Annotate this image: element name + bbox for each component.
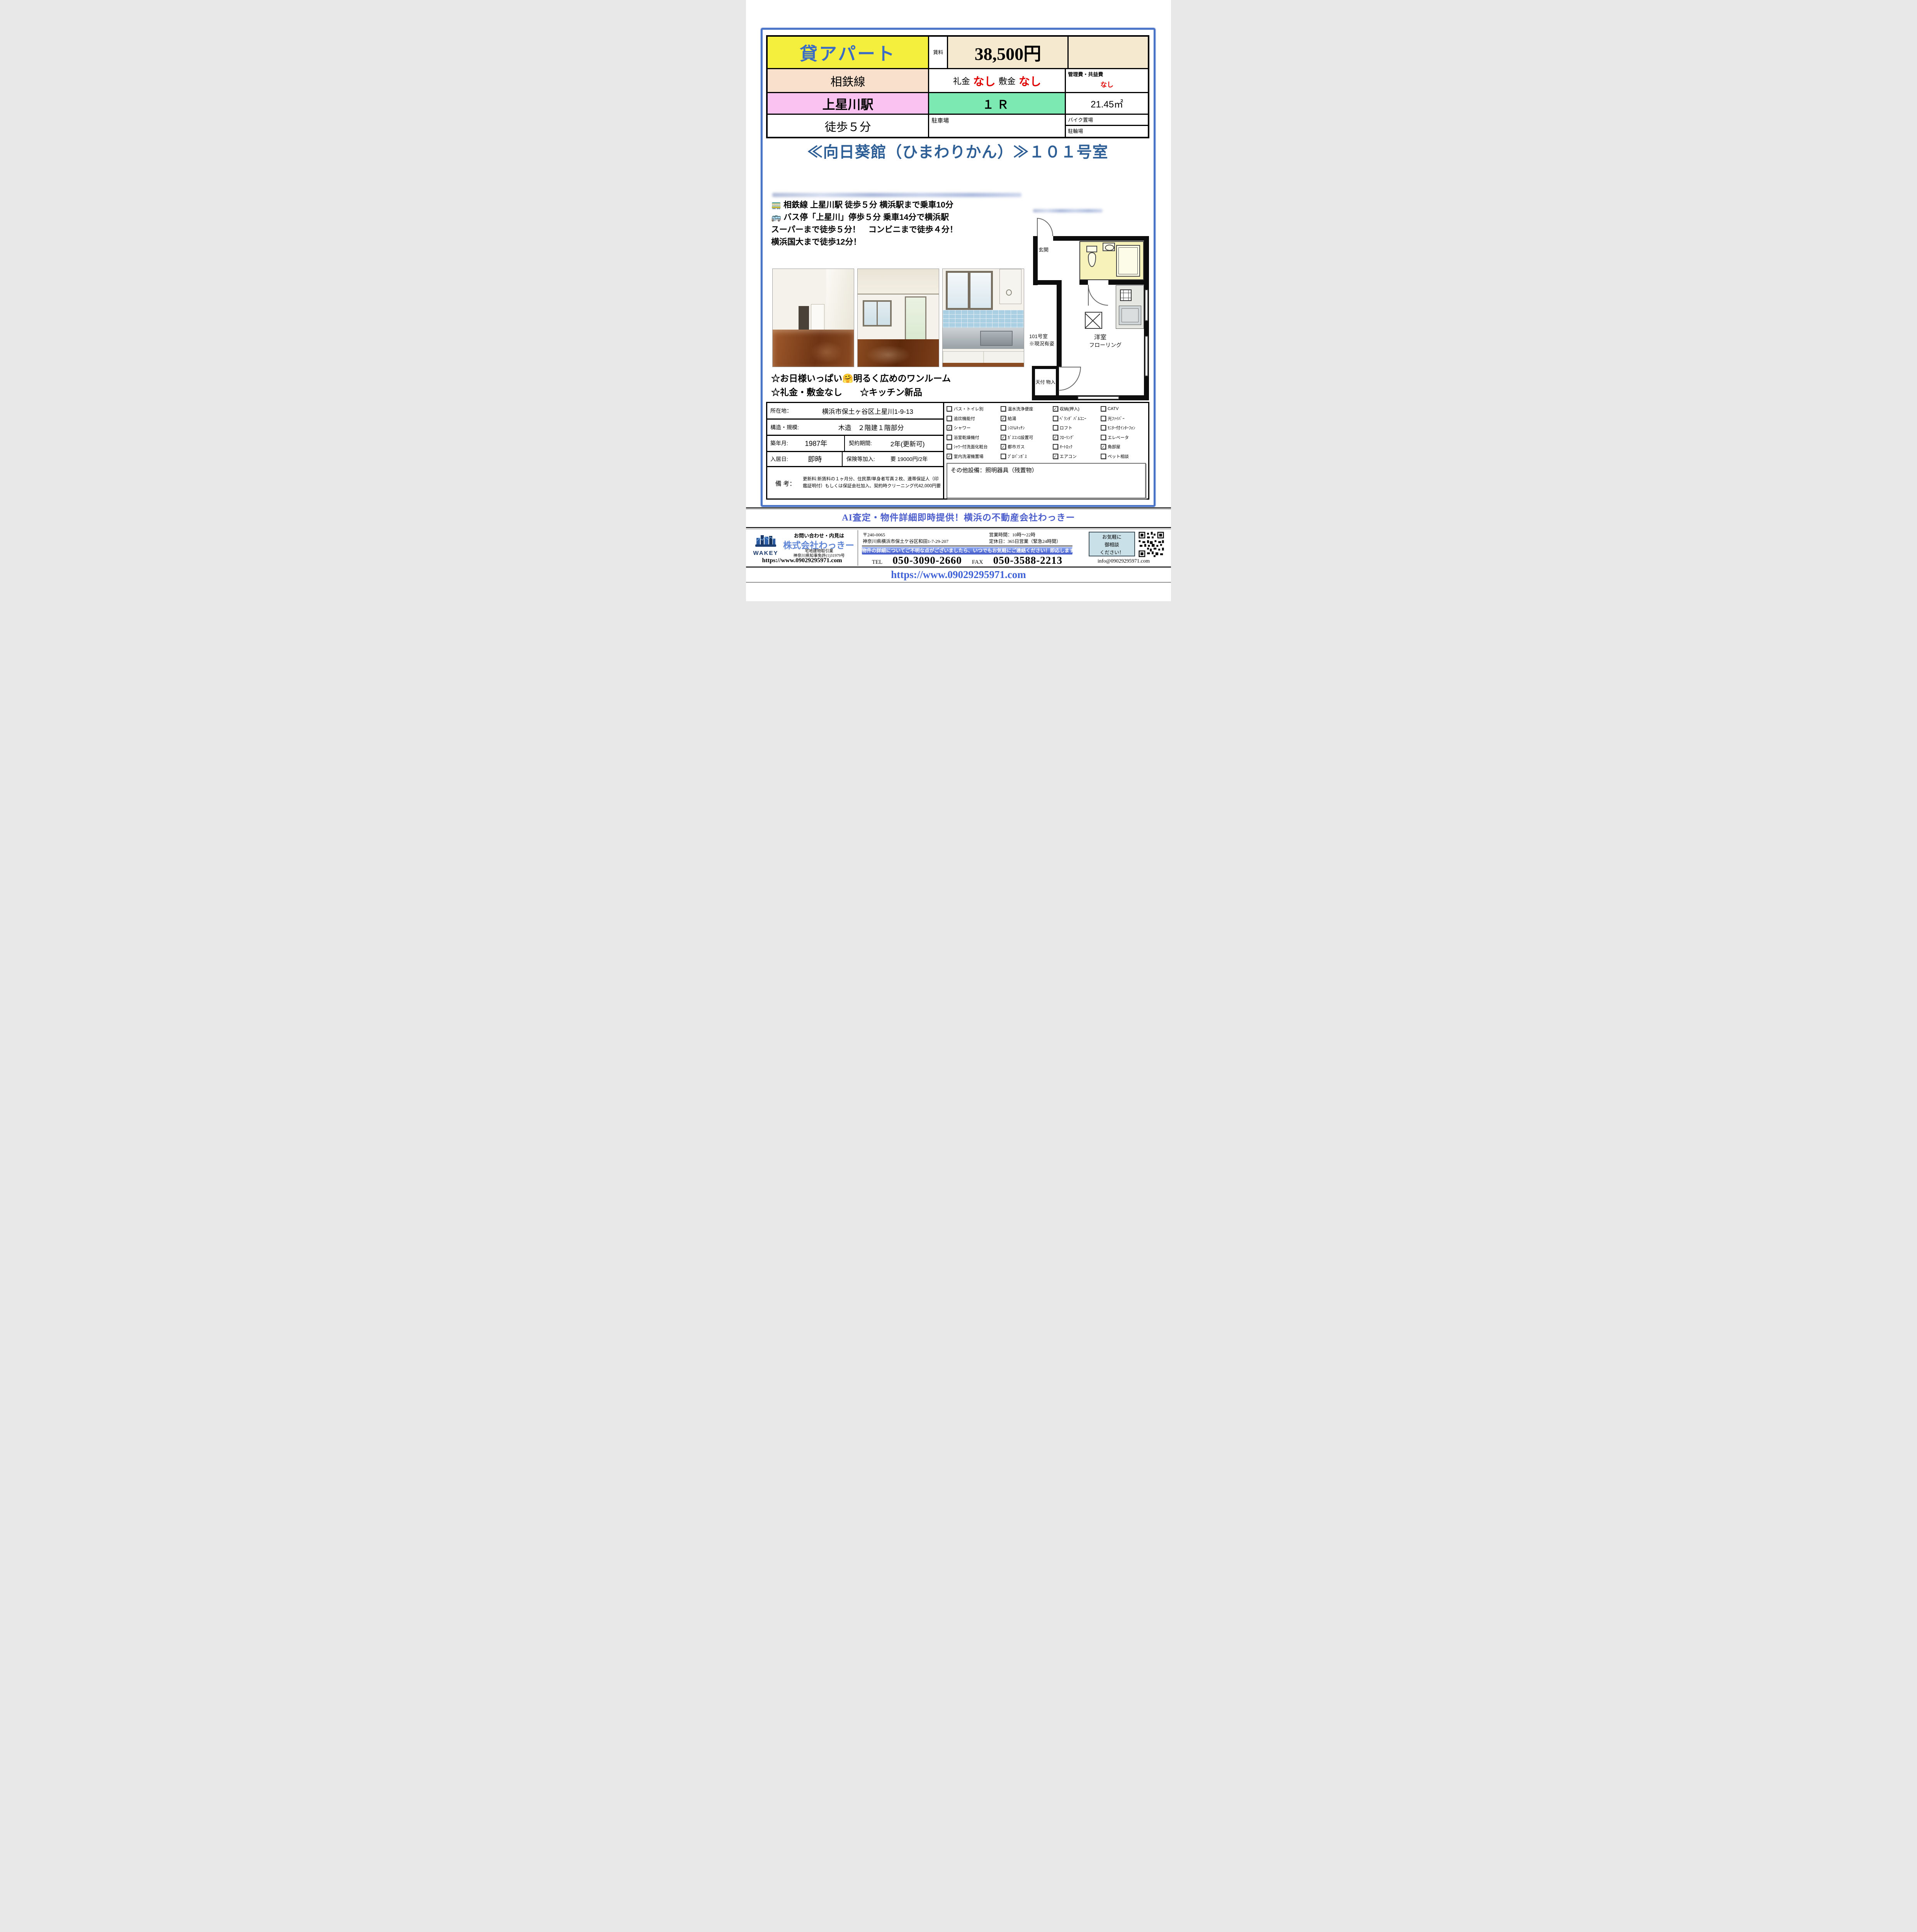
amenity-label: 室内洗濯機置場 <box>953 453 983 459</box>
checkbox-icon <box>1053 444 1058 449</box>
floor-plan: 玄関 洋室 フローリング 101号室 ※現況有姿 天付 <box>1029 194 1154 404</box>
movein-value: 即時 <box>788 454 842 464</box>
amenity-item: バス・トイレ別 <box>947 404 1001 414</box>
tel-number[interactable]: 050-3090-2660 <box>892 554 962 566</box>
details-table: 所在地： 横浜市保土ヶ谷区上星川1-9-13 構造・規模: 木造 ２階建１階部分… <box>766 402 1149 500</box>
checkbox-checked-icon: ✓ <box>947 454 952 459</box>
contract-label: 契約期間: <box>844 436 872 451</box>
bathtub-icon <box>1116 245 1140 277</box>
footer-company-block: WAKEY お問い合わせ・内見は 株式会社わっきー 宅地建物取引業 神奈川県知事… <box>746 530 858 566</box>
divider-line-2 <box>746 527 1171 529</box>
amenity-label: エアコン <box>1060 453 1077 459</box>
movein-row: 入居日: 即時 保険等加入: 要 19000円/2年 <box>767 452 943 468</box>
amenity-label: 給湯 <box>1008 415 1016 422</box>
details-right: バス・トイレ別温水洗浄便座✓収納(押入)CATV追炊機能付✓給湯ﾍﾞﾗﾝﾀﾞ ﾊ… <box>944 403 1148 498</box>
sink-icon <box>1103 243 1115 251</box>
amenity-item: ペット相談 <box>1101 452 1147 461</box>
divider-line-3 <box>746 566 1171 568</box>
amenity-label: バス・トイレ別 <box>953 406 983 412</box>
movein-label: 入居日: <box>767 455 788 463</box>
amenity-label: ﾌﾟﾛﾊﾟﾝｶﾞｽ <box>1008 453 1027 459</box>
photo2-balcony-door <box>905 296 927 345</box>
amenity-label: 浴室乾燥機付 <box>953 434 979 440</box>
checkbox-checked-icon: ✓ <box>1001 444 1006 449</box>
photo3-water-heater <box>999 269 1021 304</box>
management-fee-label: 管理費・共益費 <box>1068 70 1103 78</box>
business-hours: 営業時間：10時～22時 定休日：365日営業（緊急24時間） <box>989 532 1061 545</box>
amenity-label: ｼｽﾃﾑｷｯﾁﾝ <box>1008 425 1025 431</box>
amenity-label: ﾌﾛｰﾘﾝｸﾞ <box>1060 434 1075 440</box>
amenity-label: ﾍﾞﾗﾝﾀﾞ ﾊﾞﾙｺﾆｰ <box>1060 415 1086 422</box>
checkbox-checked-icon: ✓ <box>1001 416 1006 421</box>
checkbox-icon <box>947 435 952 440</box>
closet: 天付 物入 <box>1032 366 1059 398</box>
management-fee-cell: 管理費・共益費 なし <box>1066 69 1148 92</box>
checkbox-checked-icon: ✓ <box>947 425 952 430</box>
fax-number: 050-3588-2213 <box>993 554 1062 566</box>
location-value: 横浜市保土ヶ谷区上星川1-9-13 <box>792 406 943 416</box>
amenity-item: 光ﾌｧｲﾊﾞｰ <box>1101 414 1147 423</box>
amenity-item: 浴室乾燥機付 <box>947 433 1001 442</box>
bike-cells: バイク置場 駐輪場 <box>1066 115 1148 137</box>
footer-rule <box>862 546 1072 546</box>
amenity-item: ✓収納(押入) <box>1053 404 1101 414</box>
amenity-label: エレベータ <box>1108 434 1129 440</box>
phone-numbers: TEL 050-3090-2660 FAX 050-3588-2213 <box>858 554 1076 566</box>
blank-cell <box>1069 37 1148 68</box>
logo-wordmark: WAKEY <box>751 550 780 556</box>
location-label: 所在地： <box>767 407 792 415</box>
room-door-arc <box>1059 367 1081 391</box>
holiday-line: 定休日：365日営業（緊急24時間） <box>989 538 1061 545</box>
rent-label-cell: 賃料 <box>929 37 948 68</box>
bike-storage-cell: バイク置場 <box>1066 115 1148 126</box>
bicycle-storage-cell: 駐輪場 <box>1066 126 1148 137</box>
header-table: 貸アパート 賃料 38,500円 相鉄線 礼金 なし 敷金 なし 管理費・共益費… <box>766 35 1149 138</box>
access-line: 🚃 相鉄線 上星川駅 徒歩５分 横浜駅まで乗車10分 <box>771 199 1026 211</box>
access-lines: 🚃 相鉄線 上星川駅 徒歩５分 横浜駅まで乗車10分🚌 バス停「上星川」停歩５分… <box>771 199 1026 248</box>
amenity-label: 角部屋 <box>1108 444 1120 450</box>
photo2-window <box>863 300 892 327</box>
photo1-floor-shine <box>810 341 843 363</box>
insurance-label: 保険等加入: <box>842 452 875 466</box>
fax-label: FAX <box>972 559 983 566</box>
fees-cell: 礼金 なし 敷金 なし <box>929 69 1066 92</box>
photo1-wall <box>826 269 854 333</box>
amenity-item: ✓シャワー <box>947 423 1001 433</box>
wall-entrance-bottom <box>1033 280 1062 285</box>
redacted-text-bar <box>772 193 1021 197</box>
wall-bath-bottom-right <box>1108 280 1144 285</box>
amenity-item: ﾍﾞﾗﾝﾀﾞ ﾊﾞﾙｺﾆｰ <box>1053 414 1101 423</box>
checkbox-icon <box>1001 454 1006 459</box>
checkbox-icon <box>1101 435 1106 440</box>
amenity-label: 光ﾌｧｲﾊﾞｰ <box>1108 415 1125 422</box>
amenity-item: ✓ﾌﾛｰﾘﾝｸﾞ <box>1053 433 1101 442</box>
amenity-item: 追炊機能付 <box>947 414 1001 423</box>
bath-door-arc <box>1088 285 1108 306</box>
photo1-closet-door <box>811 304 825 333</box>
email-address[interactable]: info@09029295971.com <box>1076 558 1171 564</box>
amenities-grid: バス・トイレ別温水洗浄便座✓収納(押入)CATV追炊機能付✓給湯ﾍﾞﾗﾝﾀﾞ ﾊ… <box>947 404 1147 461</box>
checkbox-icon <box>947 416 952 421</box>
rail-line-cell: 相鉄線 <box>768 69 929 92</box>
structure-row: 構造・規模: 木造 ２階建１階部分 <box>767 420 943 436</box>
kitchen-sink-icon <box>1119 306 1141 325</box>
reikin-label: 礼金 <box>953 75 970 87</box>
amenity-item: ✓ｶﾞｽｺﾝﾛ設置可 <box>1001 433 1053 442</box>
ai-banner-text: AI査定・物件詳細即時提供！横浜の不動産会社わっきー <box>746 510 1171 523</box>
bathroom-unit <box>1079 241 1144 280</box>
hours-line: 営業時間：10時～22時 <box>989 532 1061 538</box>
other-equipment-box: その他設備：照明器具（残置物） <box>947 463 1146 498</box>
amenity-label: 温水洗浄便座 <box>1008 406 1033 412</box>
insurance-value: 要 19000円/2年 <box>875 455 943 463</box>
photo3-sink-counter <box>943 328 1024 349</box>
footer-contact-block: 〒240-0065 神奈川県横浜市保土ケ谷区和田1-7-29-207 営業時間：… <box>858 530 1076 566</box>
management-fee-value: なし <box>1100 79 1113 89</box>
amenity-item: ✓都市ガス <box>1001 442 1053 452</box>
flooring-label: フローリング <box>1089 341 1122 349</box>
footer: WAKEY お問い合わせ・内見は 株式会社わっきー 宅地建物取引業 神奈川県知事… <box>746 530 1171 566</box>
amenity-label: 都市ガス <box>1008 444 1025 450</box>
amenity-label: CATV <box>1108 406 1119 411</box>
access-line: 🚌 バス停「上星川」停歩５分 乗車14分で横浜駅 <box>771 211 1026 224</box>
amenity-label: ｼｬﾜｰ付洗面化粧台 <box>953 444 987 450</box>
wall-top <box>1053 236 1149 241</box>
built-row: 築年月: 1987年 契約期間: 2年(更新可) <box>767 436 943 452</box>
unit-caption: 101号室 ※現況有姿 <box>1029 333 1054 347</box>
photo2-floor-reflection <box>866 345 911 365</box>
amenity-label: 追炊機能付 <box>953 415 975 422</box>
entrance-label: 玄関 <box>1038 246 1049 253</box>
property-type-cell: 貸アパート <box>768 37 929 68</box>
amenity-item: ✓角部屋 <box>1101 442 1147 452</box>
amenity-item: エレベータ <box>1101 433 1147 442</box>
blue-frame: 貸アパート 賃料 38,500円 相鉄線 礼金 なし 敷金 なし 管理費・共益費… <box>761 28 1156 507</box>
details-left: 所在地： 横浜市保土ヶ谷区上星川1-9-13 構造・規模: 木造 ２階建１階部分… <box>767 403 944 498</box>
amenity-label: シャワー <box>953 425 970 431</box>
logo-buildings-icon <box>754 532 777 548</box>
tel-label: TEL <box>872 559 883 566</box>
checkbox-icon <box>1101 416 1106 421</box>
window-kitchen-icon <box>1145 289 1148 321</box>
checkbox-icon <box>1053 425 1058 430</box>
amenity-label: ロフト <box>1060 425 1072 431</box>
qr-code <box>1138 531 1165 558</box>
remarks-value: 更新料:新賃料の１ヶ月分、住民票/単身者写真２枚、連帯保証人（印鑑証明付）もしく… <box>800 476 943 490</box>
station-cell: 上星川駅 <box>768 93 929 114</box>
company-logo: WAKEY <box>751 532 780 556</box>
amenity-label: ｵｰﾄﾛｯｸ <box>1060 444 1072 450</box>
checkbox-icon <box>947 444 952 449</box>
amenity-item: ｼｬﾜｰ付洗面化粧台 <box>947 442 1001 452</box>
structure-label: 構造・規模: <box>767 423 799 431</box>
checkbox-icon <box>1101 406 1106 412</box>
checkbox-icon <box>1001 406 1006 412</box>
built-value: 1987年 <box>788 438 844 448</box>
amenity-item: ｵｰﾄﾛｯｸ <box>1053 442 1101 452</box>
company-website-link[interactable]: https://www.09029295971.com <box>746 557 858 564</box>
amenity-item: 温水洗浄便座 <box>1001 404 1053 414</box>
parking-cell: 駐車場 <box>929 115 1066 137</box>
stove-icon <box>1120 289 1132 301</box>
access-line: 横浜国大まで徒歩12分！ <box>771 236 1026 248</box>
highlight-line: ☆礼金・敷金なし ☆キッチン新品 <box>771 385 1026 399</box>
rent-value-cell: 38,500円 <box>948 37 1069 68</box>
room-label: 洋室 <box>1094 332 1106 341</box>
amenity-item: ﾓﾆﾀｰ付ｲﾝﾀｰﾌｫﾝ <box>1101 423 1147 433</box>
photo3-window <box>946 271 993 310</box>
wall-hall-left <box>1057 285 1062 367</box>
window-room-icon <box>1145 336 1148 376</box>
bottom-website-link[interactable]: https://www.09029295971.com <box>746 569 1171 581</box>
amenity-label: 収納(押入) <box>1060 406 1079 412</box>
photo3-floor <box>943 363 1024 367</box>
closet-label: 天付 物入 <box>1035 379 1055 385</box>
notice-band: 物件の詳細についてご不明な点がございましたら、いつでもお気軽にご連絡ください！即… <box>862 547 1072 554</box>
redacted-text-bar-plan <box>1033 209 1103 213</box>
checkbox-checked-icon: ✓ <box>1053 435 1058 440</box>
amenity-item: ﾌﾟﾛﾊﾟﾝｶﾞｽ <box>1001 452 1053 461</box>
header-row-1: 貸アパート 賃料 38,500円 <box>768 37 1148 69</box>
washer-space-icon <box>1085 312 1102 329</box>
divider-line-4 <box>746 582 1171 583</box>
contract-value: 2年(更新可) <box>872 439 943 448</box>
amenity-item: ✓給湯 <box>1001 414 1053 423</box>
photo-room-2 <box>857 269 939 367</box>
amenity-label: ｶﾞｽｺﾝﾛ設置可 <box>1008 434 1033 440</box>
header-row-2: 相鉄線 礼金 なし 敷金 なし 管理費・共益費 なし <box>768 69 1148 93</box>
highlight-lines: ☆お日様いっぱい🤗明るく広めのワンルーム☆礼金・敷金なし ☆キッチン新品 <box>771 371 1026 399</box>
header-row-4: 徒歩５分 駐車場 バイク置場 駐輪場 <box>768 115 1148 137</box>
amenity-item: ✓室内洗濯機置場 <box>947 452 1001 461</box>
entrance-door-arc <box>1037 218 1053 236</box>
amenity-label: ﾓﾆﾀｰ付ｲﾝﾀｰﾌｫﾝ <box>1108 425 1135 431</box>
kitchen-counter <box>1116 285 1144 329</box>
area-cell: 21.45㎡ <box>1066 93 1148 114</box>
footer-consult-block: お気軽に 御相談 ください！ info@09029295971. <box>1076 530 1171 566</box>
photo-room-1 <box>772 269 854 367</box>
amenity-label: ペット相談 <box>1108 453 1129 459</box>
built-label: 築年月: <box>767 439 788 447</box>
checkbox-checked-icon: ✓ <box>1101 444 1106 449</box>
walk-cell: 徒歩５分 <box>768 115 929 137</box>
layout-cell: １Ｒ <box>929 93 1066 114</box>
highlight-line: ☆お日様いっぱい🤗明るく広めのワンルーム <box>771 371 1026 385</box>
shikikin-label: 敷金 <box>999 75 1016 87</box>
checkbox-checked-icon: ✓ <box>1053 406 1058 412</box>
checkbox-checked-icon: ✓ <box>1001 435 1006 440</box>
amenity-item: ｼｽﾃﾑｷｯﾁﾝ <box>1001 423 1053 433</box>
wall-entrance-left <box>1033 236 1038 285</box>
checkbox-checked-icon: ✓ <box>1053 454 1058 459</box>
remarks-row: 備 考： 更新料:新賃料の１ヶ月分、住民票/単身者写真２枚、連帯保証人（印鑑証明… <box>767 467 943 498</box>
amenity-item: CATV <box>1101 404 1147 414</box>
remarks-label: 備 考： <box>767 478 800 488</box>
reikin-value: なし <box>973 73 996 89</box>
building-title: ≪向日葵館（ひまわりかん）≫１０１号室 <box>766 141 1149 163</box>
flyer-page: 貸アパート 賃料 38,500円 相鉄線 礼金 なし 敷金 なし 管理費・共益費… <box>746 0 1171 601</box>
checkbox-icon <box>1053 416 1058 421</box>
checkbox-icon <box>1001 425 1006 430</box>
rent-label: 賃料 <box>933 49 943 55</box>
window-bottom-icon <box>1077 396 1119 400</box>
checkbox-icon <box>1101 454 1106 459</box>
photo2-ceiling <box>858 269 939 294</box>
shikikin-value: なし <box>1019 73 1041 89</box>
amenity-item: ロフト <box>1053 423 1101 433</box>
location-row: 所在地： 横浜市保土ヶ谷区上星川1-9-13 <box>767 403 943 420</box>
structure-value: 木造 ２階建１階部分 <box>799 422 943 432</box>
photo-kitchen <box>942 269 1024 367</box>
checkbox-icon <box>947 406 952 412</box>
wall-bath-bottom-left <box>1079 280 1088 285</box>
checkbox-icon <box>1101 425 1106 430</box>
toilet-icon <box>1086 246 1097 252</box>
divider-line-1 <box>746 507 1171 510</box>
consult-box: お気軽に 御相談 ください！ <box>1089 532 1135 556</box>
header-row-3: 上星川駅 １Ｒ 21.45㎡ <box>768 93 1148 115</box>
amenity-item: ✓エアコン <box>1053 452 1101 461</box>
access-line: スーパーまで徒歩５分！ コンビニまで徒歩４分！ <box>771 224 1026 236</box>
